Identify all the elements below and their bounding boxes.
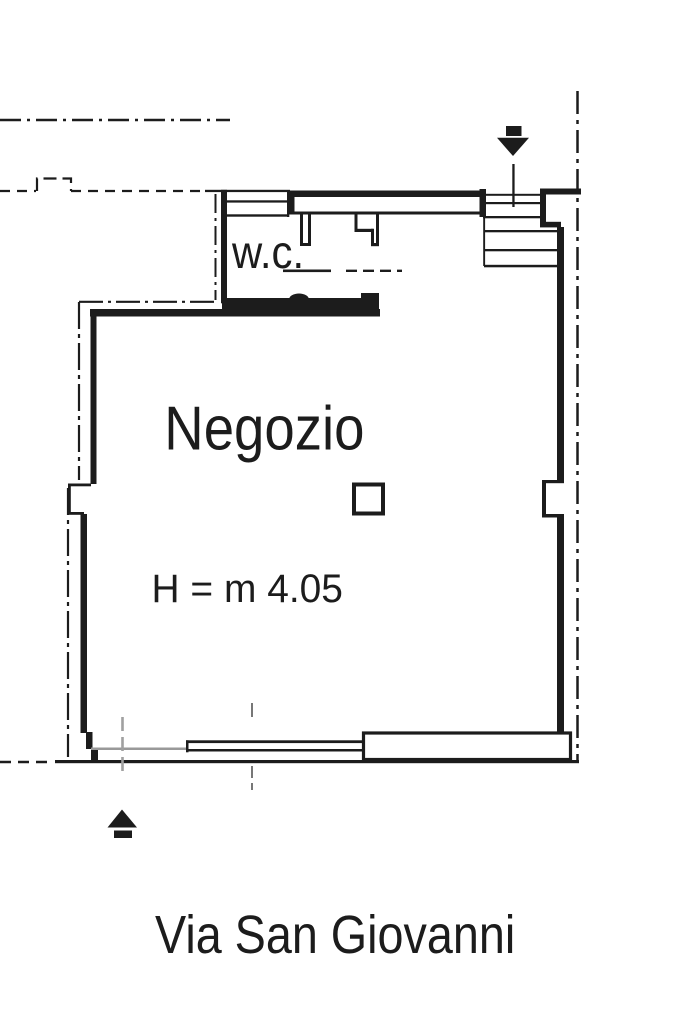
svg-text:Negozio: Negozio [164,394,364,463]
svg-text:H = m 4.05: H = m 4.05 [152,567,343,611]
svg-text:Via San Giovanni: Via San Giovanni [155,904,515,965]
